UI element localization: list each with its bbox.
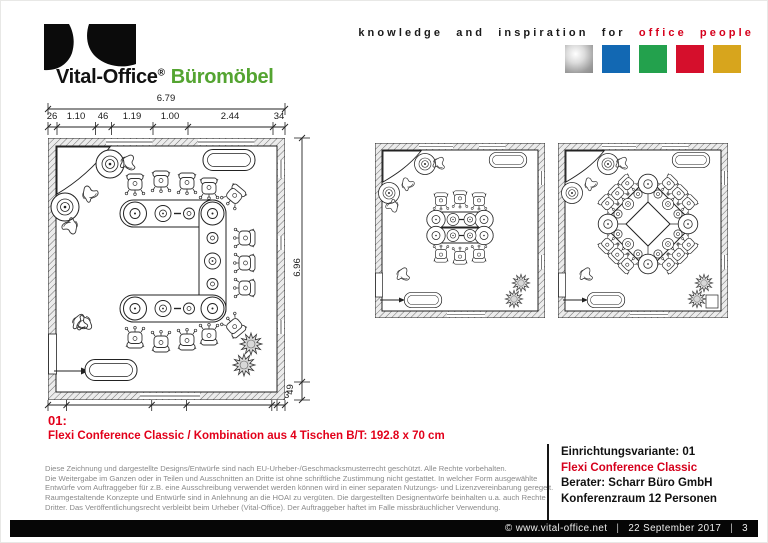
person-sketch [578, 266, 594, 282]
sideboard [203, 150, 255, 171]
brand-color-squares [565, 45, 741, 73]
dim-top-seg-3: 1.19 [123, 111, 142, 122]
footer-date: 22 September 2017 [628, 523, 721, 534]
conference-chairs [125, 171, 255, 352]
person-sketch [79, 182, 100, 203]
tagline-prefix: knowledge and inspiration for [358, 27, 625, 39]
footer-website-link[interactable]: © www.vital-office.net [505, 523, 607, 534]
dimension-line-bottom-segments [48, 400, 288, 413]
plant [505, 290, 523, 308]
info-variant: Einrichtungsvariante: 01 [561, 445, 717, 461]
variant-floor-plan-diamond [558, 143, 728, 318]
sideboard [489, 152, 526, 167]
legal-line: Entwürfe vom Auftraggeber für z.B. eine … [45, 483, 553, 493]
sideboard [672, 152, 709, 167]
variant-number: 01: [48, 413, 67, 428]
dim-top-seg-5: 2.44 [221, 111, 240, 122]
sideboard [404, 292, 441, 307]
entry-door [49, 334, 57, 374]
color-square-silver [565, 45, 593, 73]
dim-top-seg-6: 34 [274, 111, 285, 122]
plant [688, 290, 706, 308]
variant-description: Flexi Conference Classic / Kombination a… [48, 430, 445, 442]
dimension-line-top-segments [48, 122, 285, 136]
color-square-gold [713, 45, 741, 73]
color-square-red [676, 45, 704, 73]
legal-line: Dritter. Das Veröffentlichungsrecht verb… [45, 503, 553, 513]
round-table [598, 154, 619, 175]
footer-separator: | [730, 523, 733, 534]
legal-line: Raumgestaltende Konzepte und Entwürfe si… [45, 493, 553, 503]
u-shaped-table [120, 200, 226, 322]
entry-arrow [380, 298, 405, 303]
round-table [51, 193, 79, 221]
registered-mark: ® [158, 67, 165, 78]
info-product: Flexi Conference Classic [561, 461, 717, 477]
legal-line: Die Weitergabe im Ganzen oder in Teilen … [45, 474, 553, 484]
dim-top-seg-0: 26 [47, 111, 58, 122]
sideboard [587, 292, 624, 307]
round-table [562, 183, 583, 204]
color-square-green [639, 45, 667, 73]
dim-top-seg-1: 1.10 [67, 111, 86, 122]
dim-top-seg-2: 46 [98, 111, 109, 122]
document-page: Vital-Office®Büromöbel knowledge and ins… [0, 0, 768, 543]
brand-name: Vital-Office [56, 66, 158, 88]
round-table [96, 150, 124, 178]
dimension-line-height [292, 138, 312, 400]
entry-arrow [54, 368, 89, 375]
footer-separator: | [616, 523, 619, 534]
person-sketch [395, 266, 411, 282]
main-floor-plan [48, 138, 285, 400]
block-table [427, 210, 493, 244]
round-table [379, 183, 400, 204]
plant [512, 274, 530, 292]
tagline: knowledge and inspiration for office peo… [358, 27, 754, 39]
brand-wordmark: Vital-Office®Büromöbel [56, 66, 274, 89]
entry-door [376, 273, 383, 297]
person-sketch [582, 175, 599, 192]
legal-line: Diese Zeichnung und dargestellte Designs… [45, 464, 553, 474]
corner-element [706, 295, 718, 308]
round-table [415, 154, 436, 175]
person-sketch [399, 175, 416, 192]
info-panel-divider [547, 444, 549, 520]
dim-top-seg-4: 1.00 [161, 111, 180, 122]
info-panel: Einrichtungsvariante: 01 Flexi Conferenc… [561, 445, 717, 507]
color-square-blue [602, 45, 630, 73]
entry-door [559, 273, 566, 297]
legal-text: Diese Zeichnung und dargestellte Designs… [45, 464, 553, 513]
tagline-highlight: office people [639, 27, 754, 39]
plant [233, 354, 255, 376]
variant-floor-plan-block [375, 143, 545, 318]
entry-arrow [563, 298, 588, 303]
plant [240, 333, 262, 355]
brand-product-line: Büromöbel [171, 66, 274, 88]
plant [695, 274, 713, 292]
info-consultant: Berater: Scharr Büro GmbH [561, 476, 717, 492]
sideboard [85, 360, 137, 381]
footer-bar: © www.vital-office.net | 22 September 20… [10, 520, 758, 537]
info-room: Konferenzraum 12 Personen [561, 492, 717, 508]
footer-page-number: 3 [742, 523, 748, 534]
